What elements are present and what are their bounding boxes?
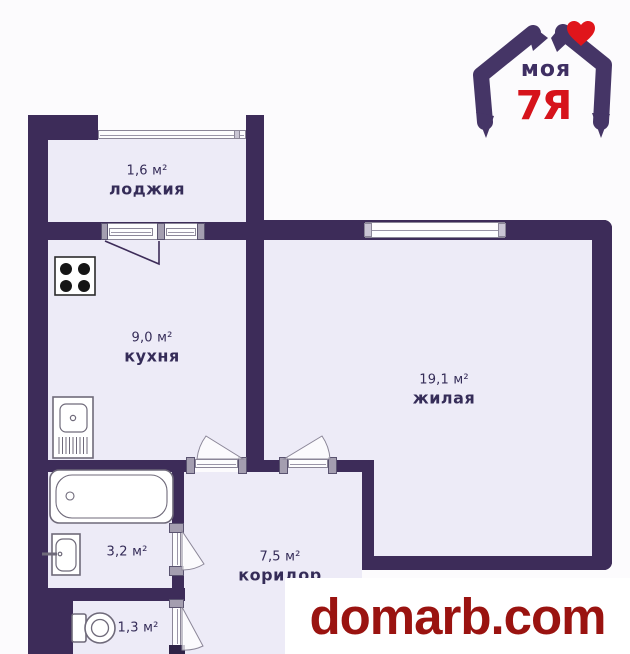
kitchen-door-post-left	[186, 457, 195, 474]
label-loggia: 1,6 м² лоджия	[109, 164, 185, 199]
bathroom-area: 3,2 м²	[106, 545, 147, 560]
loggia-glazing-window	[98, 130, 246, 139]
label-living: 19,1 м² жилая	[413, 373, 475, 408]
wall-right-outer	[592, 220, 612, 570]
balcony-post-right	[197, 223, 205, 240]
watermark-text: domarb.com	[309, 587, 605, 646]
label-bathroom: 3,2 м²	[106, 545, 147, 560]
wc-area: 1,3 м²	[117, 621, 158, 636]
living-door-leaf	[288, 459, 328, 468]
living-window	[365, 222, 505, 238]
wall-living-bottom	[362, 556, 612, 570]
balcony-post-mid	[157, 223, 165, 240]
label-wc: 1,3 м²	[117, 621, 158, 636]
wall-corridor-right	[362, 462, 374, 570]
kitchen-area: 9,0 м²	[124, 331, 179, 346]
wall-left-outer	[28, 115, 48, 654]
loggia-glazing-tick	[234, 130, 240, 139]
logo-text-top: моя	[521, 57, 571, 82]
bathroom-door-post-top	[169, 523, 184, 533]
living-door-post-right	[328, 457, 337, 474]
room-bathroom	[48, 472, 172, 588]
living-door-post-left	[279, 457, 288, 474]
wc-door-leaf	[172, 607, 181, 646]
living-name: жилая	[413, 389, 475, 408]
floorplan-canvas: 1,6 м² лоджия 9,0 м² кухня 19,1 м² жилая…	[0, 0, 630, 654]
wc-door-post-bottom	[169, 645, 185, 654]
wall-bath-wc-divider	[28, 588, 185, 601]
bathroom-door-leaf	[172, 531, 181, 567]
wall-loggia-top-left	[28, 115, 98, 140]
balcony-door-pane	[109, 228, 153, 236]
living-area: 19,1 м²	[413, 373, 475, 388]
kitchen-door-leaf	[195, 459, 238, 468]
balcony-window-pane	[166, 228, 196, 236]
agency-logo: моя 7Я	[463, 2, 625, 144]
loggia-area: 1,6 м²	[109, 164, 185, 179]
wc-door-post-top	[169, 599, 184, 608]
label-kitchen: 9,0 м² кухня	[124, 331, 179, 366]
wall-corridor-top-right	[337, 460, 374, 472]
kitchen-door-post-right	[238, 457, 247, 474]
logo-text-bottom: 7Я	[516, 83, 571, 129]
corridor-area: 7,5 м²	[238, 550, 321, 565]
living-window-cap-right	[498, 223, 506, 237]
balcony-post-left	[101, 223, 108, 240]
wall-kitchen-living-divider	[246, 222, 264, 472]
wall-loggia-right	[246, 115, 264, 222]
wall-corridor-top-left	[28, 460, 186, 472]
loggia-name: лоджия	[109, 180, 185, 199]
wall-bathroom-right-upper	[172, 472, 184, 524]
wall-wc-left-thick	[28, 601, 73, 654]
living-window-cap-left	[364, 223, 372, 237]
wall-corridor-top-mid	[247, 460, 279, 472]
kitchen-name: кухня	[124, 347, 179, 366]
watermark-box: domarb.com	[285, 578, 630, 654]
bathroom-door-post-bottom	[169, 566, 184, 576]
